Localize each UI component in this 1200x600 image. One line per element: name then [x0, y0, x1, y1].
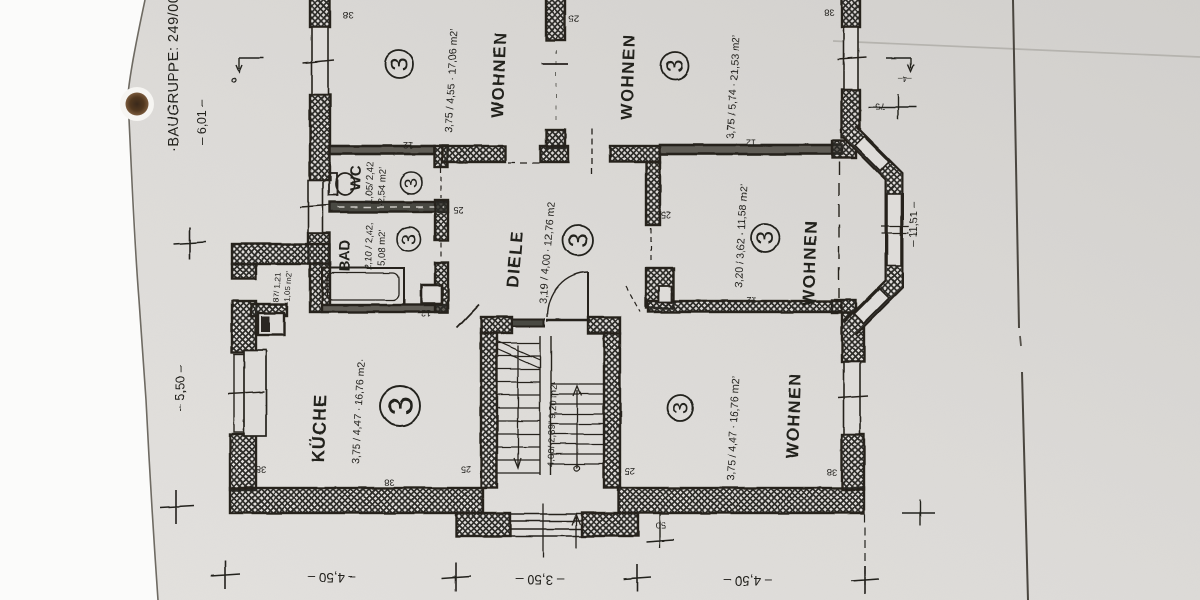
svg-text:1,05/ 2,42: 1,05/ 2,42: [364, 161, 376, 204]
svg-text:3: 3: [662, 59, 689, 72]
svg-text:25: 25: [461, 464, 471, 474]
svg-text:BAD: BAD: [336, 239, 354, 272]
svg-text:12: 12: [421, 308, 431, 318]
svg-text:3: 3: [563, 233, 593, 247]
svg-text:38: 38: [343, 9, 354, 20]
svg-text:– 3,50 –: – 3,50 –: [515, 572, 564, 587]
svg-text:87/ 1,21: 87/ 1,21: [272, 272, 282, 302]
svg-text:WOHNEN: WOHNEN: [488, 31, 510, 118]
svg-text:– 5,50 –: – 5,50 –: [173, 366, 187, 411]
svg-text:– 6,01 –: – 6,01 –: [195, 100, 209, 145]
svg-text:3: 3: [752, 231, 779, 244]
svg-text:WC: WC: [347, 165, 365, 191]
svg-text:25: 25: [569, 12, 580, 23]
svg-text:– 4,50 –: – 4,50 –: [307, 570, 356, 585]
svg-text:38: 38: [827, 466, 838, 477]
svg-text:3: 3: [399, 233, 421, 244]
svg-text:12: 12: [746, 137, 756, 147]
svg-text:38: 38: [384, 476, 395, 487]
svg-text:– 11,51 –: – 11,51 –: [908, 201, 920, 247]
svg-text:3: 3: [668, 402, 693, 414]
svg-text:50: 50: [656, 519, 667, 530]
svg-text:∙2,54 m2’: ∙2,54 m2’: [376, 167, 388, 206]
svg-text:38: 38: [824, 7, 835, 18]
svg-text:25: 25: [625, 466, 635, 476]
svg-text:3: 3: [386, 57, 413, 70]
svg-text:– 4,50 –: – 4,50 –: [723, 573, 772, 588]
svg-text:75: 75: [875, 100, 886, 111]
svg-text:–4–: –4–: [898, 74, 912, 84]
svg-text:38: 38: [256, 463, 267, 474]
svg-text:·BAUGRUPPE: 249/00.: ·BAUGRUPPE: 249/00.: [166, 0, 182, 152]
svg-text:WOHNEN: WOHNEN: [783, 372, 805, 459]
svg-text:WOHNEN: WOHNEN: [617, 33, 639, 120]
svg-text:3: 3: [401, 178, 421, 188]
svg-text:5,08 m2’: 5,08 m2’: [376, 229, 388, 266]
svg-text:12: 12: [746, 295, 756, 305]
svg-text:12: 12: [403, 140, 413, 150]
svg-text:KÜCHE: KÜCHE: [308, 393, 330, 463]
svg-text:2,10 / 2,42,: 2,10 / 2,42,: [363, 222, 376, 270]
svg-text:25: 25: [454, 205, 464, 215]
svg-text:25: 25: [661, 210, 671, 220]
svg-text:WOHNEN: WOHNEN: [799, 219, 821, 306]
svg-text:∙1,05 m2’: ∙1,05 m2’: [283, 271, 293, 304]
svg-text:3: 3: [382, 397, 420, 416]
